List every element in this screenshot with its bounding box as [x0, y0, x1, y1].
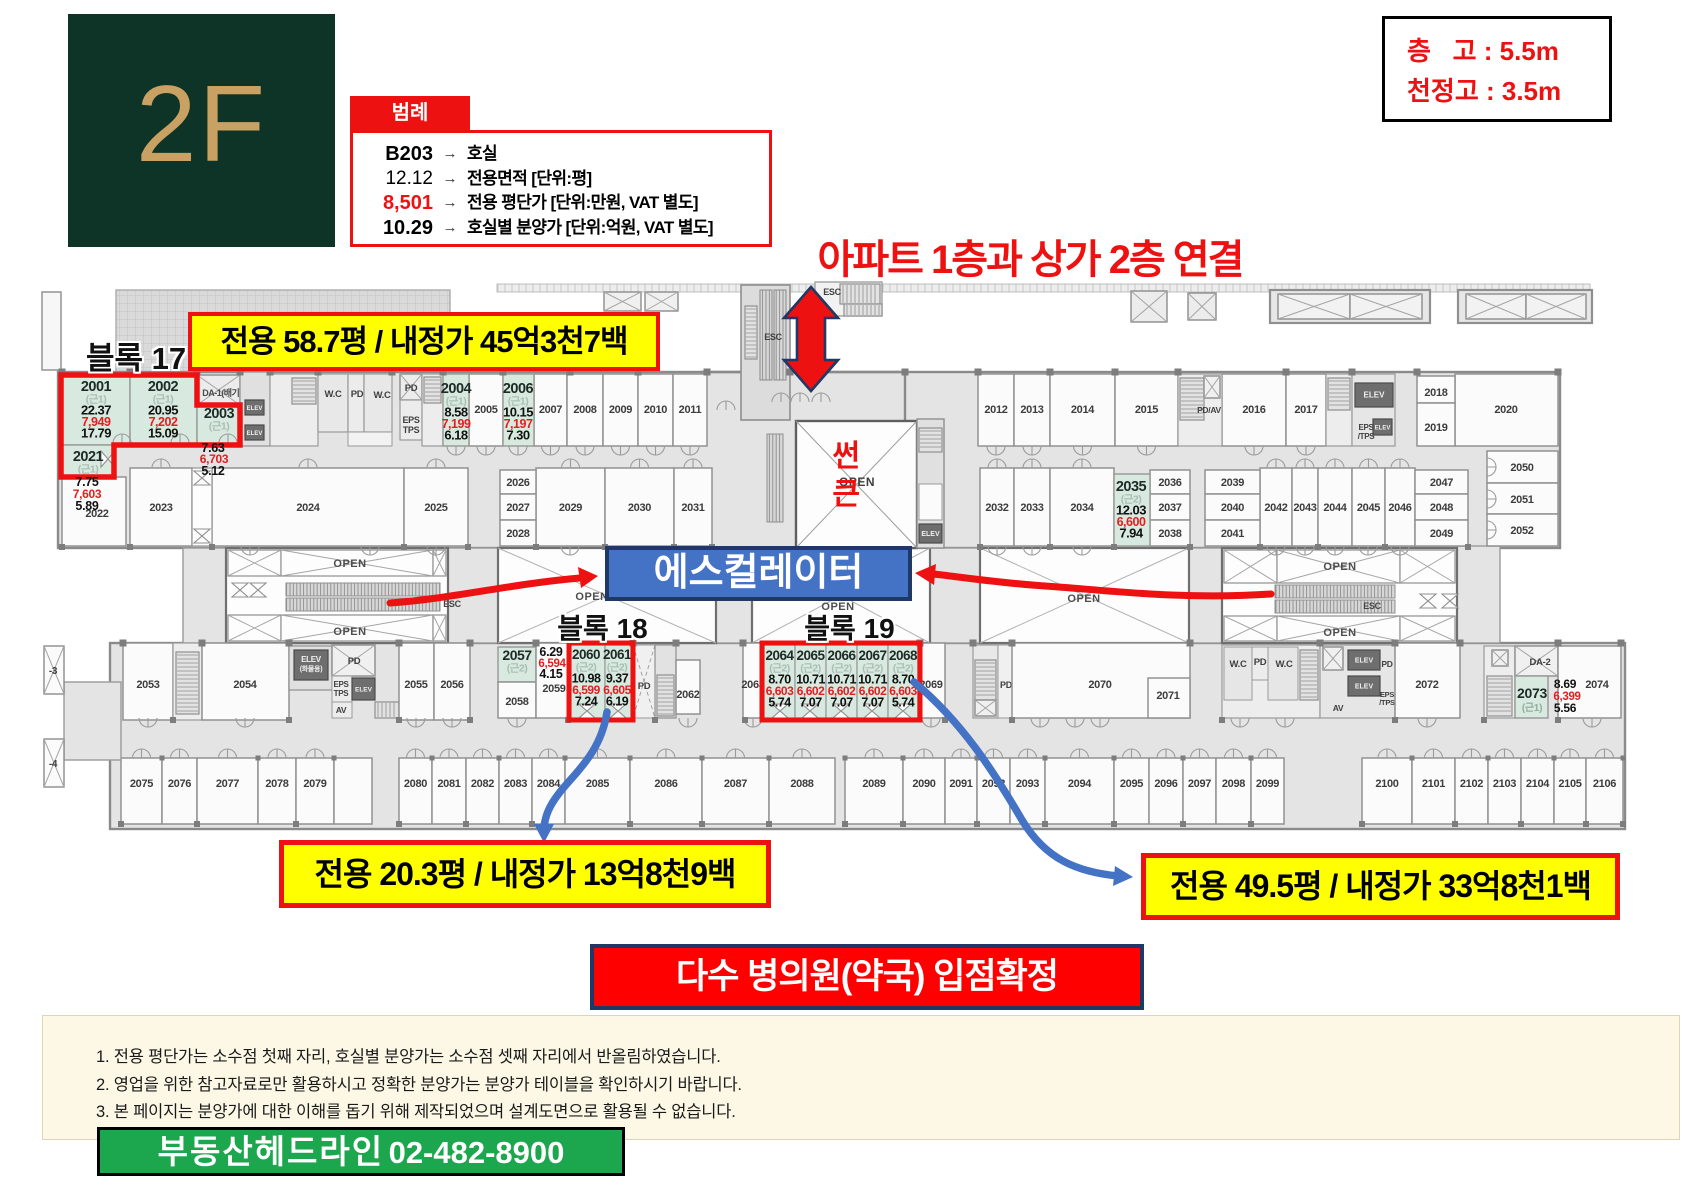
svg-text:2051: 2051 [1510, 494, 1533, 506]
svg-text:5.56: 5.56 [1554, 701, 1577, 715]
svg-text:썬: 썬 [832, 440, 859, 473]
svg-text:2041: 2041 [1221, 528, 1244, 540]
svg-text:2046: 2046 [1388, 502, 1411, 514]
svg-text:2091: 2091 [949, 778, 972, 790]
svg-text:2094: 2094 [1068, 778, 1092, 790]
svg-text:OPEN: OPEN [575, 591, 608, 603]
svg-text:PD: PD [348, 656, 361, 667]
svg-text:6.18: 6.18 [444, 428, 468, 443]
svg-text:2075: 2075 [130, 778, 153, 790]
svg-text:2048: 2048 [1430, 502, 1453, 514]
svg-text:(근2): (근2) [507, 663, 528, 675]
svg-text:ESC: ESC [443, 599, 461, 609]
svg-text:2065: 2065 [796, 648, 825, 663]
svg-text:2097: 2097 [1188, 778, 1211, 790]
svg-text:2052: 2052 [1510, 525, 1533, 537]
svg-text:PD: PD [638, 681, 651, 692]
svg-text:2066: 2066 [827, 648, 856, 663]
svg-text:2044: 2044 [1323, 502, 1347, 514]
svg-text:2049: 2049 [1430, 528, 1453, 540]
svg-text:7.07: 7.07 [830, 696, 853, 710]
svg-text:2018: 2018 [1424, 387, 1447, 399]
svg-text:2034: 2034 [1070, 502, 1094, 514]
svg-text:2019: 2019 [1424, 422, 1447, 434]
svg-text:OPEN: OPEN [1323, 627, 1356, 639]
svg-text:2105: 2105 [1558, 778, 1581, 790]
svg-text:2059: 2059 [542, 683, 565, 695]
svg-text:2093: 2093 [1016, 778, 1039, 790]
svg-text:2083: 2083 [504, 778, 527, 790]
svg-text:2039: 2039 [1221, 477, 1244, 489]
svg-text:PD: PD [351, 389, 364, 400]
svg-text:2042: 2042 [1264, 502, 1287, 514]
svg-text:2015: 2015 [1135, 404, 1158, 416]
svg-text:OPEN: OPEN [1067, 593, 1100, 605]
svg-text:2082: 2082 [471, 778, 494, 790]
svg-text:2061: 2061 [603, 647, 632, 662]
svg-text:ESC: ESC [1363, 601, 1381, 611]
svg-text:2056: 2056 [440, 679, 463, 691]
svg-text:/TPS: /TPS [1379, 698, 1395, 707]
svg-text:2087: 2087 [724, 778, 747, 790]
svg-text:2020: 2020 [1494, 404, 1517, 416]
svg-text:2071: 2071 [1156, 690, 1179, 702]
svg-text:W.C: W.C [1229, 659, 1246, 670]
svg-text:PD: PD [1000, 680, 1013, 690]
svg-text:2017: 2017 [1294, 404, 1317, 416]
svg-text:2043: 2043 [1293, 502, 1316, 514]
svg-text:5.74: 5.74 [892, 696, 915, 710]
svg-text:ELEV: ELEV [921, 531, 940, 538]
svg-text:ELEV: ELEV [1364, 391, 1386, 400]
svg-text:2079: 2079 [303, 778, 326, 790]
svg-text:AV: AV [1333, 703, 1344, 713]
svg-text:W.C: W.C [324, 389, 341, 400]
svg-text:2023: 2023 [149, 502, 172, 514]
svg-text:PD: PD [405, 383, 418, 394]
svg-text:ESC: ESC [823, 287, 841, 297]
svg-text:2010: 2010 [644, 404, 667, 416]
svg-text:2031: 2031 [681, 502, 704, 514]
svg-text:AV: AV [336, 705, 347, 715]
svg-text:-4: -4 [49, 759, 58, 770]
svg-text:2037: 2037 [1158, 502, 1181, 514]
svg-text:7.07: 7.07 [799, 696, 822, 710]
svg-text:W.C: W.C [1275, 659, 1292, 670]
svg-text:ELEV: ELEV [355, 687, 373, 694]
svg-text:5.89: 5.89 [75, 499, 98, 513]
svg-text:ELEV: ELEV [301, 655, 322, 664]
svg-text:2008: 2008 [573, 404, 596, 416]
svg-text:2036: 2036 [1158, 477, 1181, 489]
svg-text:2026: 2026 [506, 477, 529, 489]
svg-text:2057: 2057 [502, 647, 532, 663]
svg-text:2005: 2005 [474, 404, 497, 416]
svg-text:ELEV: ELEV [247, 431, 263, 437]
svg-text:2067: 2067 [858, 648, 886, 663]
svg-text:6.29: 6.29 [539, 645, 562, 659]
svg-text:2060: 2060 [572, 647, 600, 662]
svg-text:2055: 2055 [404, 679, 427, 691]
svg-text:8.69: 8.69 [1554, 677, 1577, 691]
svg-text:2040: 2040 [1221, 502, 1244, 514]
svg-text:2030: 2030 [628, 502, 651, 514]
svg-text:(근1): (근1) [1522, 702, 1542, 714]
svg-text:2090: 2090 [912, 778, 935, 790]
svg-text:ELEV: ELEV [247, 406, 263, 412]
svg-text:-3: -3 [49, 666, 58, 677]
svg-text:2016: 2016 [1242, 404, 1265, 416]
svg-text:2032: 2032 [985, 502, 1008, 514]
svg-text:2045: 2045 [1357, 502, 1380, 514]
svg-text:2054: 2054 [233, 679, 257, 691]
svg-text:EPS: EPS [1358, 423, 1374, 432]
svg-text:2077: 2077 [216, 778, 239, 790]
svg-text:2014: 2014 [1071, 404, 1095, 416]
svg-text:2102: 2102 [1460, 778, 1483, 790]
svg-text:2012: 2012 [984, 404, 1007, 416]
svg-text:2064: 2064 [765, 648, 794, 663]
svg-text:OPEN: OPEN [333, 558, 366, 570]
svg-text:2084: 2084 [537, 778, 561, 790]
svg-text:EPS: EPS [333, 680, 349, 689]
svg-text:7.30: 7.30 [506, 428, 530, 443]
svg-text:2062: 2062 [676, 689, 699, 701]
svg-text:DA-2: DA-2 [1530, 657, 1551, 668]
svg-text:2058: 2058 [505, 696, 528, 708]
svg-text:2099: 2099 [1256, 778, 1279, 790]
svg-text:2070: 2070 [1088, 679, 1111, 691]
svg-text:2038: 2038 [1158, 528, 1181, 540]
svg-text:15.09: 15.09 [148, 426, 178, 441]
svg-text:2088: 2088 [790, 778, 813, 790]
svg-text:W.C: W.C [373, 390, 390, 401]
svg-text:2033: 2033 [1020, 502, 1043, 514]
svg-text:2095: 2095 [1120, 778, 1143, 790]
svg-text:2025: 2025 [424, 502, 447, 514]
svg-text:2072: 2072 [1415, 679, 1438, 691]
svg-text:2078: 2078 [265, 778, 288, 790]
svg-text:4.15: 4.15 [539, 667, 562, 681]
svg-text:2029: 2029 [559, 502, 582, 514]
svg-text:7.94: 7.94 [1119, 526, 1144, 541]
svg-text:5.74: 5.74 [768, 696, 791, 710]
svg-text:ELEV: ELEV [1375, 426, 1391, 432]
svg-text:(화물용): (화물용) [300, 664, 322, 673]
svg-text:2106: 2106 [1593, 778, 1616, 790]
svg-text:2101: 2101 [1422, 778, 1445, 790]
svg-text:2047: 2047 [1430, 477, 1453, 489]
svg-text:OPEN: OPEN [1323, 561, 1356, 573]
svg-text:2081: 2081 [437, 778, 460, 790]
svg-text:2011: 2011 [679, 404, 702, 416]
svg-text:2028: 2028 [506, 528, 529, 540]
svg-text:2100: 2100 [1375, 778, 1398, 790]
svg-text:2068: 2068 [889, 648, 918, 663]
svg-text:EPS: EPS [402, 415, 419, 425]
svg-text:ELEV: ELEV [1355, 684, 1374, 691]
svg-text:2089: 2089 [862, 778, 885, 790]
svg-text:PD: PD [1381, 659, 1392, 669]
svg-text:큰: 큰 [832, 478, 859, 511]
svg-text:2053: 2053 [136, 679, 159, 691]
svg-text:6.19: 6.19 [606, 695, 629, 709]
svg-text:2013: 2013 [1020, 404, 1043, 416]
svg-text:7.07: 7.07 [861, 696, 884, 710]
svg-text:DA-1(배기): DA-1(배기) [202, 387, 242, 398]
svg-text:ELEV: ELEV [1355, 658, 1374, 665]
svg-text:2103: 2103 [1493, 778, 1516, 790]
svg-text:(근1): (근1) [78, 464, 99, 476]
svg-text:5.12: 5.12 [201, 464, 224, 478]
svg-text:2024: 2024 [296, 502, 320, 514]
svg-text:2086: 2086 [654, 778, 677, 790]
svg-text:2007: 2007 [539, 404, 562, 416]
svg-text:2098: 2098 [1222, 778, 1245, 790]
svg-text:2096: 2096 [1154, 778, 1177, 790]
svg-text:TPS: TPS [334, 689, 350, 698]
svg-text:2080: 2080 [404, 778, 427, 790]
svg-text:2027: 2027 [506, 502, 529, 514]
svg-text:2050: 2050 [1510, 462, 1533, 474]
svg-text:7.24: 7.24 [575, 695, 598, 709]
svg-text:PD: PD [1254, 657, 1267, 668]
svg-text:ESC: ESC [764, 332, 782, 342]
svg-text:2104: 2104 [1526, 778, 1550, 790]
svg-text:2073: 2073 [1517, 685, 1547, 701]
svg-text:(근1): (근1) [209, 421, 230, 433]
svg-text:2009: 2009 [609, 404, 632, 416]
svg-text:2074: 2074 [1585, 679, 1609, 691]
svg-text:OPEN: OPEN [333, 626, 366, 638]
svg-text:17.79: 17.79 [81, 426, 111, 441]
svg-text:TPS: TPS [403, 425, 420, 435]
svg-text:2076: 2076 [168, 778, 191, 790]
svg-text:/TPS: /TPS [1358, 432, 1376, 441]
svg-text:2085: 2085 [586, 778, 609, 790]
svg-text:PD/AV: PD/AV [1197, 405, 1221, 415]
